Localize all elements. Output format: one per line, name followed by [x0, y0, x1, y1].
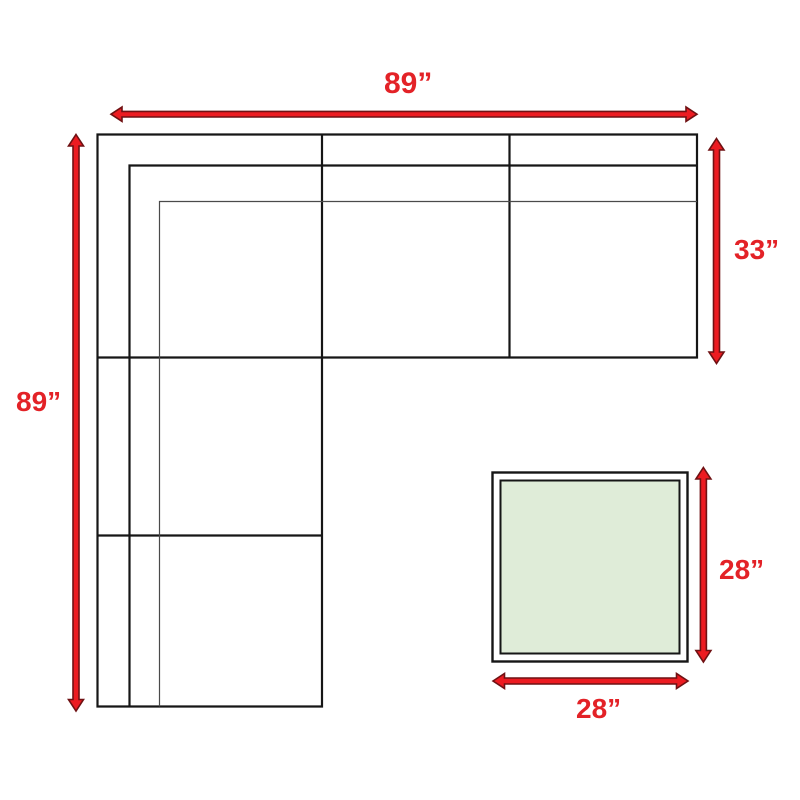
- svg-text:89”: 89”: [16, 386, 61, 417]
- svg-text:89”: 89”: [384, 67, 432, 100]
- svg-text:28”: 28”: [719, 554, 764, 585]
- svg-text:28”: 28”: [576, 693, 621, 724]
- svg-text:33”: 33”: [734, 234, 779, 265]
